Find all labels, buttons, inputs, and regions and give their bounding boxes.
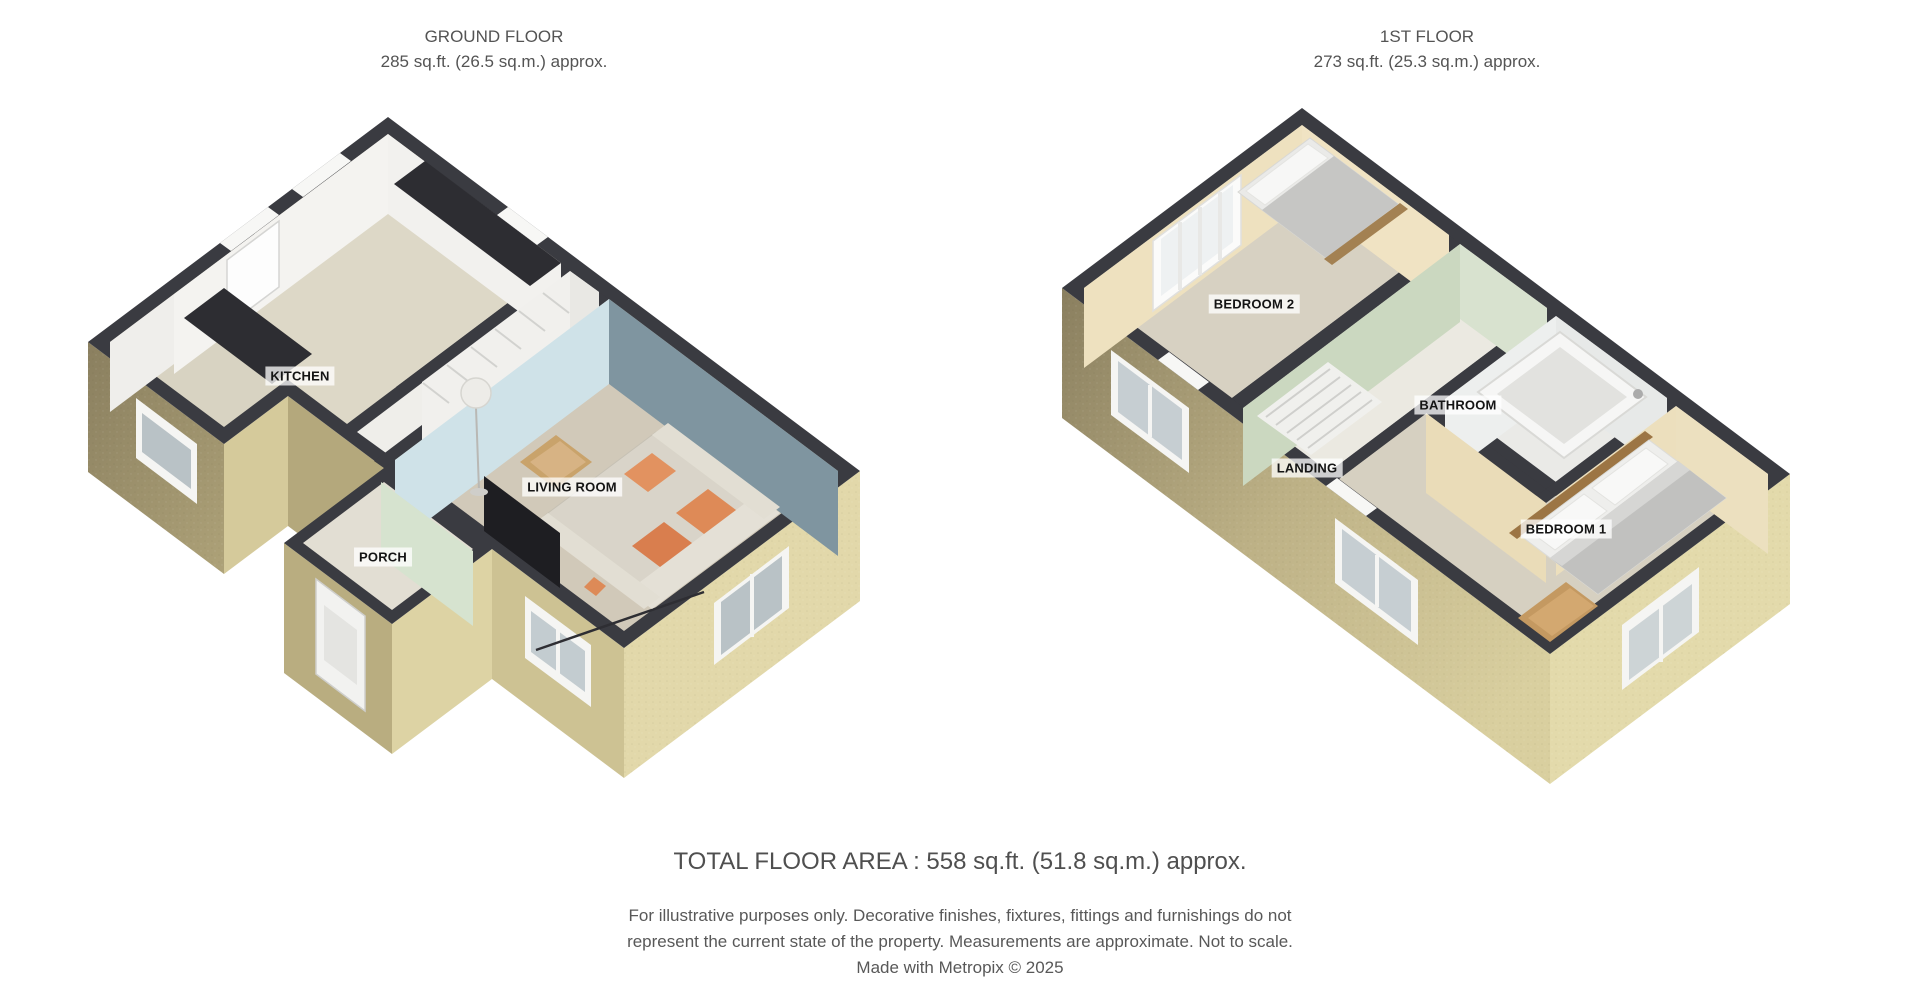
disclaimer-line-2: represent the current state of the prope… (0, 929, 1920, 955)
room-label-landing: LANDING (1272, 459, 1343, 478)
room-label-kitchen: KITCHEN (265, 367, 334, 386)
room-label-bedroom-1: BEDROOM 1 (1521, 520, 1612, 539)
room-label-bedroom-2: BEDROOM 2 (1209, 295, 1300, 314)
disclaimer-line-1: For illustrative purposes only. Decorati… (0, 903, 1920, 929)
first-floor-area: 273 sq.ft. (25.3 sq.m.) approx. (1314, 49, 1541, 74)
first-floor-title-block: 1ST FLOOR 273 sq.ft. (25.3 sq.m.) approx… (1314, 24, 1541, 74)
ground-floor-plan (88, 117, 860, 778)
ground-floor-area: 285 sq.ft. (26.5 sq.m.) approx. (381, 49, 608, 74)
room-label-porch: PORCH (354, 548, 412, 567)
bath-tap (1633, 389, 1643, 399)
ground-floor-title: GROUND FLOOR (381, 24, 608, 49)
first-floor-title: 1ST FLOOR (1314, 24, 1541, 49)
disclaimer-line-3: Made with Metropix © 2025 (0, 955, 1920, 981)
room-label-living-room: LIVING ROOM (522, 478, 622, 497)
disclaimer: For illustrative purposes only. Decorati… (0, 903, 1920, 981)
total-floor-area: TOTAL FLOOR AREA : 558 sq.ft. (51.8 sq.m… (0, 848, 1920, 876)
room-label-bathroom: BATHROOM (1414, 396, 1501, 415)
ground-floor-title-block: GROUND FLOOR 285 sq.ft. (26.5 sq.m.) app… (381, 24, 608, 74)
floorplan-page: GROUND FLOOR 285 sq.ft. (26.5 sq.m.) app… (0, 0, 1920, 999)
first-floor-plan (1062, 108, 1790, 784)
